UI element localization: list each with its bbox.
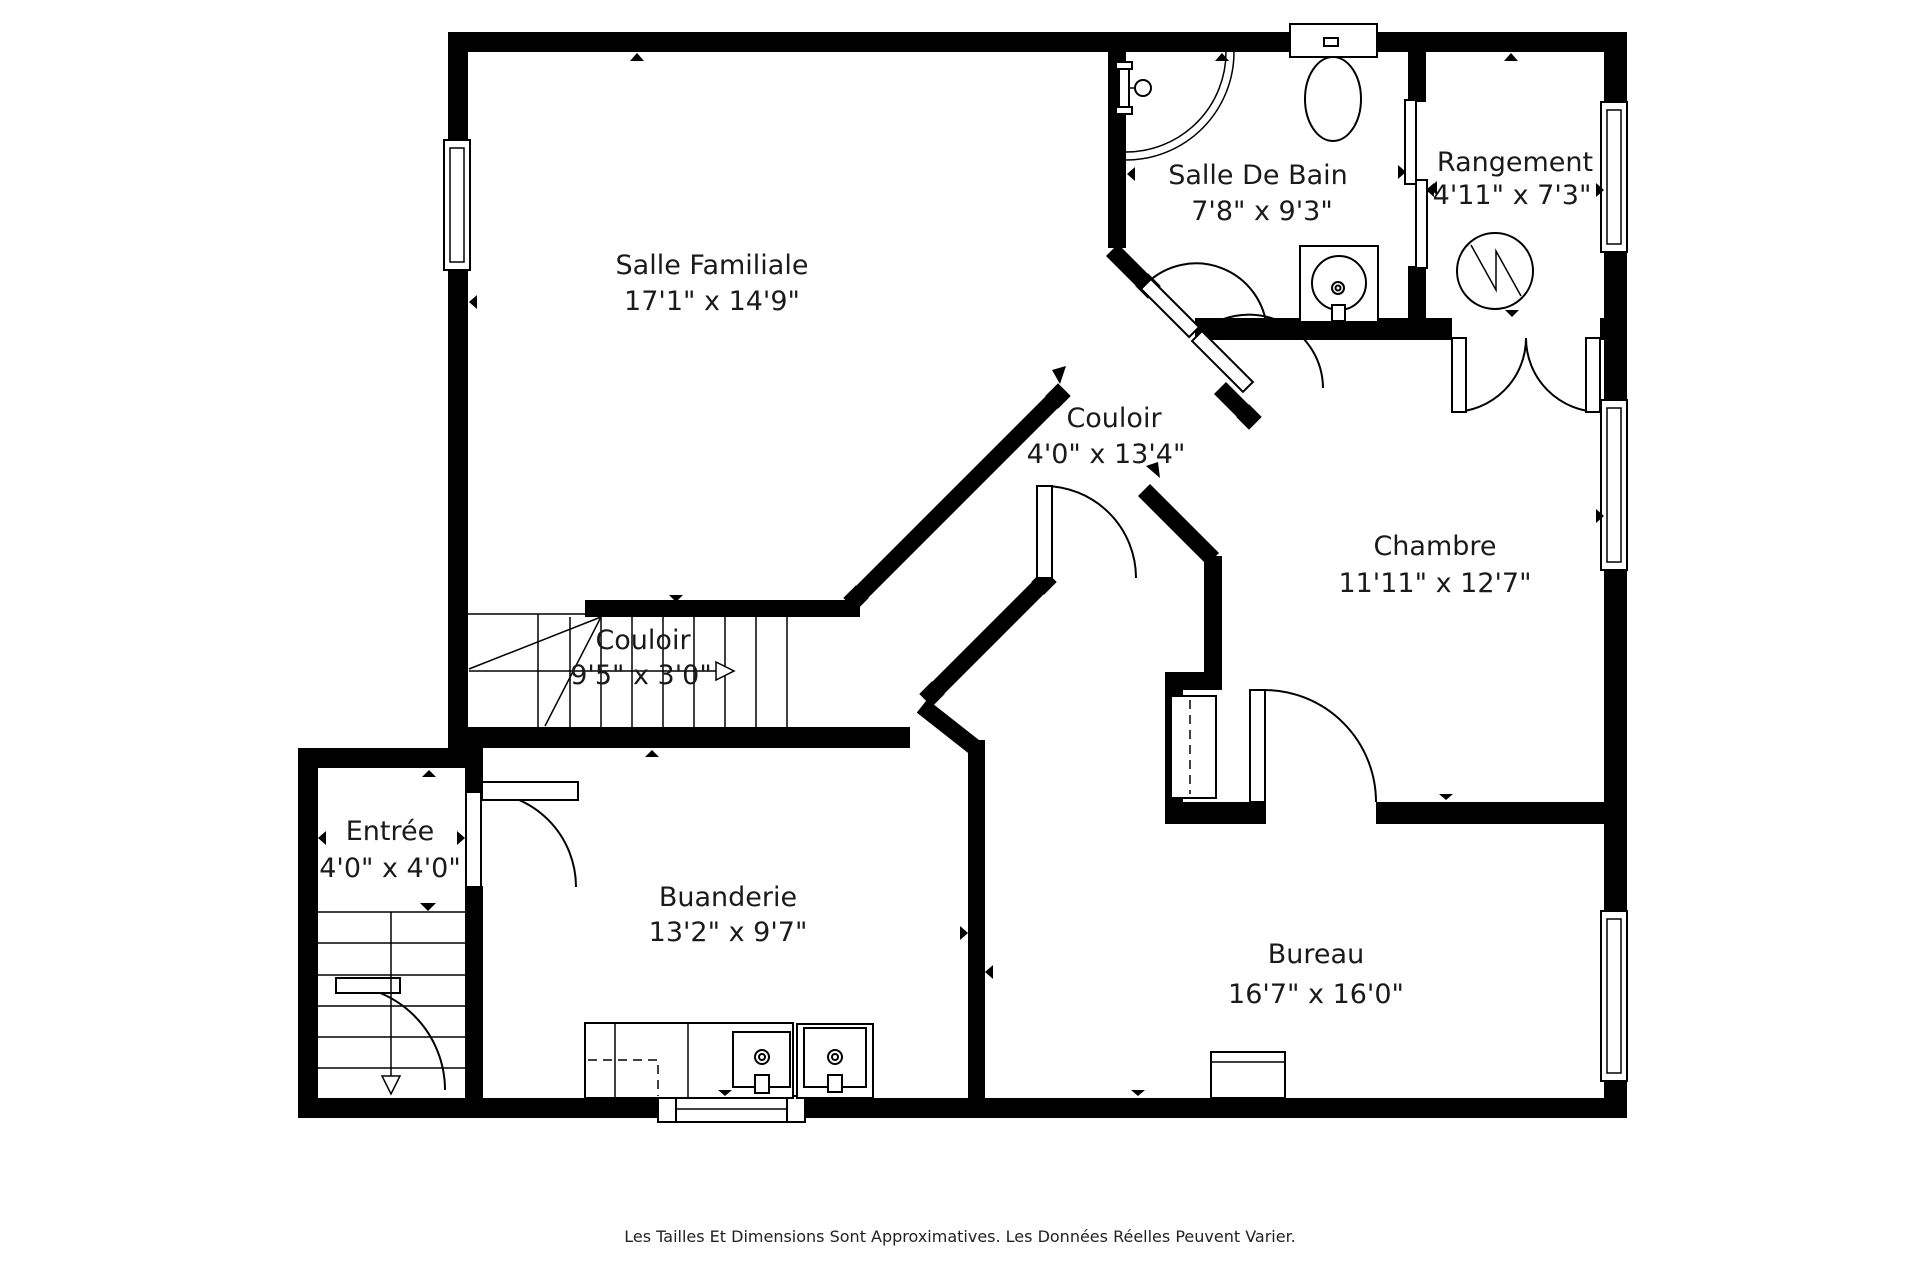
toilet-icon <box>1290 24 1377 141</box>
room-label-entree: Entrée <box>346 816 435 847</box>
shower-head-icon <box>1116 62 1151 114</box>
disclaimer-text: Les Tailles Et Dimensions Sont Approxima… <box>624 1227 1296 1246</box>
bathroom-sink-icon <box>1300 246 1378 322</box>
window-icon <box>1601 102 1627 252</box>
room-dims-bureau: 16'7" x 16'0" <box>1228 979 1404 1010</box>
room-dims-chambre: 11'11" x 12'7" <box>1338 568 1531 599</box>
window-icon <box>444 140 470 270</box>
double-door-icon <box>1452 338 1600 412</box>
pocket-door-icon <box>1405 100 1427 268</box>
room-label-buanderie: Buanderie <box>659 882 797 913</box>
room-label-salle-familiale: Salle Familiale <box>616 250 809 281</box>
door-swing-icon <box>466 792 576 887</box>
window-icon <box>1601 911 1627 1081</box>
closet-icon <box>1171 696 1216 798</box>
floorplan-canvas: Salle Familiale 17'1" x 14'9" Salle De B… <box>0 0 1920 1280</box>
room-dims-rangement: 4'11" x 7'3" <box>1433 180 1592 211</box>
window-icon <box>1601 400 1627 570</box>
room-labels: Salle Familiale 17'1" x 14'9" Salle De B… <box>319 147 1593 1010</box>
door-swing-icon <box>1037 486 1136 578</box>
room-label-salle-de-bain: Salle De Bain <box>1168 160 1348 191</box>
room-label-bureau: Bureau <box>1268 939 1364 970</box>
cabinet-icon <box>482 782 578 800</box>
room-dims-salle-de-bain: 7'8" x 9'3" <box>1191 196 1333 227</box>
room-dims-entree: 4'0" x 4'0" <box>319 853 461 884</box>
room-dims-couloir-stairs: 9'5" x 3'0" <box>570 660 712 691</box>
desk-icon <box>1211 1052 1285 1098</box>
shower-icon <box>1126 52 1234 160</box>
washer-icon <box>797 1024 873 1098</box>
room-dims-salle-familiale: 17'1" x 14'9" <box>624 286 800 317</box>
room-label-rangement: Rangement <box>1437 147 1593 178</box>
room-dims-couloir-diagonal: 4'0" x 13'4" <box>1027 439 1186 470</box>
room-dims-buanderie: 13'2" x 9'7" <box>649 917 808 948</box>
floorplan-svg: Salle Familiale 17'1" x 14'9" Salle De B… <box>0 0 1920 1280</box>
window-icon <box>658 1096 805 1122</box>
door-swing-icon <box>1250 690 1376 802</box>
room-label-couloir-diagonal: Couloir <box>1066 403 1162 434</box>
room-label-chambre: Chambre <box>1373 531 1496 562</box>
laundry-sink-icon <box>733 1032 790 1093</box>
water-heater-icon <box>1457 233 1533 309</box>
room-label-couloir-stairs: Couloir <box>595 625 691 656</box>
